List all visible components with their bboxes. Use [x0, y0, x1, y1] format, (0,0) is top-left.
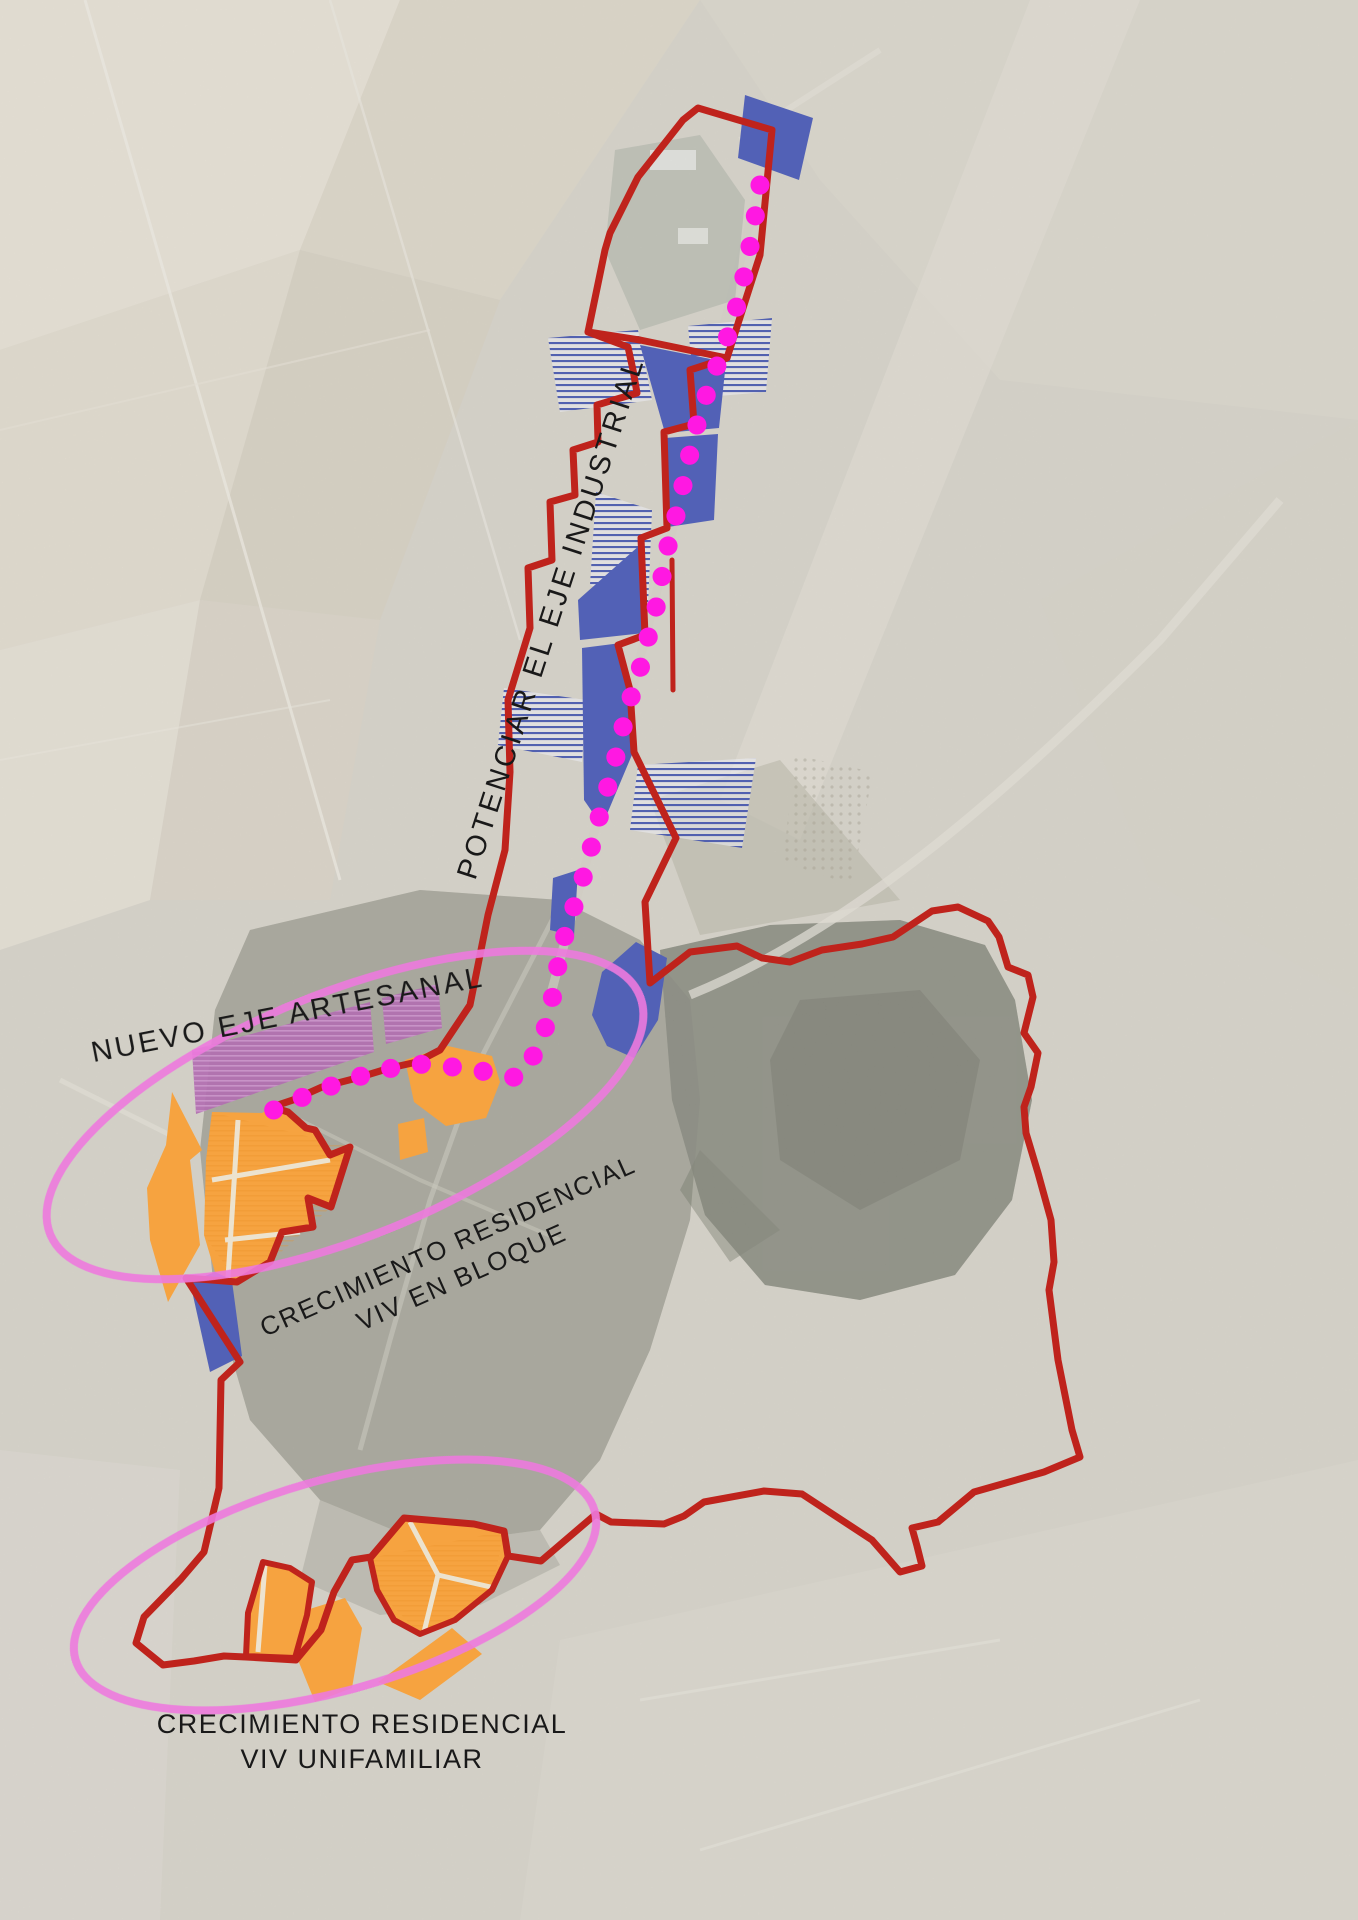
label-residential-detached-line1: CRECIMIENTO RESIDENCIAL [157, 1707, 568, 1742]
map-canvas: POTENCIAR EL EJE INDUSTRIAL NUEVO EJE AR… [0, 0, 1358, 1920]
label-residential-detached-line2: VIV UNIFAMILIAR [157, 1742, 568, 1777]
label-residential-detached: CRECIMIENTO RESIDENCIAL VIV UNIFAMILIAR [157, 1707, 568, 1777]
boundary-internal-line [672, 560, 673, 690]
map-svg [0, 0, 1358, 1920]
